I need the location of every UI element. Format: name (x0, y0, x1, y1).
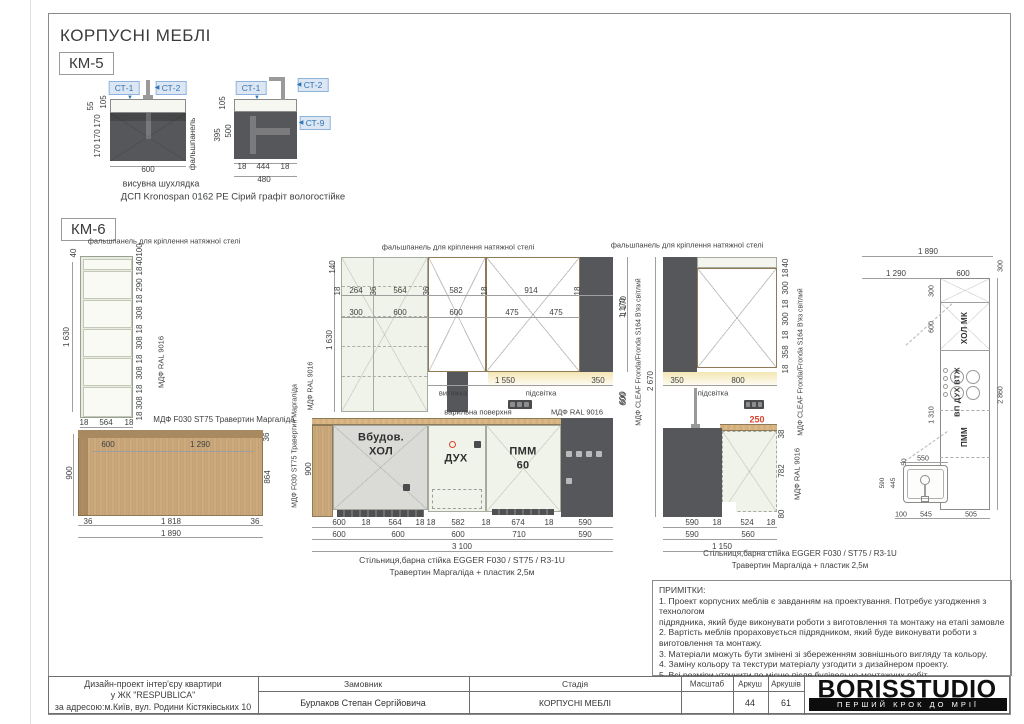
km5-side-drawer-profile-v (250, 116, 256, 154)
note-line: 4. Заміну кольору та текстури матеріалу … (659, 659, 1005, 670)
dim-label: 308 (136, 336, 144, 349)
ref-tag: СТ-9 (300, 116, 331, 130)
km5-front-faucet-base (143, 95, 153, 99)
dim-label: 590 (685, 519, 698, 527)
dim-label: 18 (281, 163, 290, 171)
dim-label: 505 (965, 512, 977, 519)
dim-label: 3 100 (452, 543, 472, 551)
dim-label: 40 (70, 249, 78, 258)
km6-shelf-unit (80, 256, 133, 418)
dim-label: 140 (329, 260, 337, 273)
leader-arrow-icon: ◀ (299, 120, 304, 126)
tb-vline (804, 677, 805, 715)
socket-dot (517, 402, 522, 407)
dim-label: 18 (782, 365, 790, 374)
dim-label: 475 (505, 309, 518, 317)
dim-label: 864 (264, 470, 272, 483)
dim-label: 18 (545, 519, 554, 527)
ref-tag: СТ-1 (109, 81, 140, 95)
km6-c-upper-door-right (486, 257, 580, 372)
dim-label: 300 (349, 309, 362, 317)
text-label: фальшпанель для кріплення натяжної стелі (611, 241, 764, 249)
km6-c-fridge-vent (337, 510, 424, 517)
socket-dot (510, 402, 515, 407)
dim-label: 36 (263, 433, 271, 442)
project-line-1: Дизайн-проект інтер'єру квартири (84, 679, 221, 689)
dim-label: 2 860 (998, 386, 1005, 404)
burner-circle (966, 386, 980, 400)
text-label: фальшпанель для кріплення натяжної стелі (88, 237, 241, 245)
dim-label: 308 (136, 366, 144, 379)
shelf-dash (342, 376, 427, 377)
shelf-dash (342, 346, 427, 347)
km6-c-dark-base (561, 418, 613, 517)
sheet-label: Аркуш (738, 680, 762, 689)
stage-value: КОРПУСНІ МЕБЛІ (539, 698, 611, 708)
socket-dot (524, 402, 529, 407)
dim-label: 358 (782, 345, 790, 358)
dim-label: 300 (782, 281, 790, 294)
km6-wood-panel-top-strip (78, 430, 263, 438)
project-line-3: за адресою:м.Київ, вул. Родини Кістяківс… (55, 702, 251, 712)
sheets-total: 61 (781, 698, 791, 708)
dim-line (341, 317, 580, 318)
text-label: Травертин Маргаліда + пластик 2,5м (390, 568, 535, 577)
dim-line (92, 451, 254, 452)
dim-label: 18 (136, 385, 144, 394)
dim-label: 1 290 (886, 270, 906, 278)
dim-label: 40 (782, 259, 790, 268)
text-label: МДФ F030 ST75 Травертин Маргаліда (153, 416, 294, 424)
dim-line (428, 385, 613, 386)
dim-label: 914 (524, 287, 537, 295)
dim-label: 2 670 (647, 371, 655, 391)
dim-label: 100 (136, 243, 144, 256)
dim-label: 170 (94, 114, 102, 127)
dim-label: 782 (778, 464, 786, 477)
dim-label: 550 (917, 456, 929, 463)
dim-label: 105 (219, 96, 227, 109)
dim-label: 105 (100, 95, 108, 108)
dim-line (663, 527, 777, 528)
km5-label: КМ-5 (59, 52, 114, 75)
dim-label: 308 (136, 396, 144, 409)
km6-r-wall-cabinet (697, 268, 777, 368)
tb-vline (681, 677, 682, 715)
dim-label: 545 (920, 512, 932, 519)
dim-label: 170 (94, 144, 102, 157)
text-label: МДФ F030 ST75 Травертин Маргаліда (292, 384, 299, 508)
text-label: МДФ RAL 9016 (551, 408, 603, 416)
note-line: 1. Проект корпусних меблів є завданням н… (659, 596, 1005, 607)
dim-line (663, 385, 777, 386)
dim-label: 600 (393, 309, 406, 317)
note-line: технологом (659, 606, 1005, 617)
text-label: МДФ RAL 9016 (793, 448, 801, 500)
dim-line (80, 427, 133, 428)
dim-label: 250 (749, 416, 764, 425)
km6-c-dw-vent (492, 509, 554, 515)
dim-label: 590 (578, 519, 591, 527)
note-line: 3. Матеріали можуть бути змінені зі збер… (659, 649, 1005, 660)
leader-arrow-icon: ▼ (127, 95, 133, 101)
text-label: МДФ RAL 9016 (157, 336, 165, 388)
handle-dot (576, 451, 582, 457)
km6-r-faucet (694, 388, 697, 428)
km6-c-tall-divider (373, 257, 374, 412)
knob-circle (943, 368, 948, 373)
handle-dot (566, 478, 572, 484)
plan-wall-line (862, 278, 940, 279)
client-label: Замовник (344, 679, 382, 689)
dim-label: 18 (782, 300, 790, 309)
km6-r-toe-notch (722, 502, 736, 512)
title-block: Дизайн-проект інтер'єру квартири у ЖК "R… (48, 676, 1010, 714)
socket-triple (744, 400, 764, 409)
socket-dot (758, 402, 762, 407)
dim-label: 600 (141, 166, 154, 174)
dim-label: 18 (767, 519, 776, 527)
ref-tag: СТ-2 (156, 81, 187, 95)
client-value: Бурлаков Степан Сергійовича (300, 698, 426, 708)
dim-label: 674 (511, 519, 524, 527)
text-label: ПММ (961, 427, 969, 447)
sheet-number: 44 (745, 698, 755, 708)
km6-wood-panel-left-stile (78, 438, 88, 516)
dim-label: 600 (332, 531, 345, 539)
dim-label: 445 (891, 478, 898, 489)
dim-label: 600 (956, 270, 969, 278)
dim-label: 264 (349, 287, 362, 295)
dim-label: 18 (238, 163, 247, 171)
knob-circle (943, 384, 948, 389)
handle-dot (586, 451, 592, 457)
ref-tag: СТ-2 (298, 78, 329, 92)
dim-label: 1 550 (495, 377, 515, 385)
dim-label: 564 (99, 419, 112, 427)
dim-label: 475 (549, 309, 562, 317)
dim-label: 600 (332, 519, 345, 527)
dim-label: 18 (136, 295, 144, 304)
text-label: варильна поверхня (444, 408, 511, 416)
dim-label: 300 (782, 312, 790, 325)
tb-vline (469, 677, 470, 715)
dim-label: 600 (101, 441, 114, 449)
tb-vline (768, 677, 769, 715)
text-label: МДФ RAL 9016 (308, 362, 315, 411)
dim-label: 40 (136, 257, 144, 266)
dim-label: 1 890 (161, 530, 181, 538)
km6-c-oven-drawer (432, 489, 482, 509)
dim-label: 500 (225, 124, 233, 137)
shelf-opening (83, 387, 132, 417)
dim-label: 18 (427, 519, 436, 527)
shelf-opening (83, 358, 132, 386)
text-label: підсвітка (526, 389, 557, 397)
km6-r-light-base (722, 431, 777, 512)
dim-label: 38 (778, 430, 786, 439)
dim-label: 350 (670, 377, 683, 385)
dim-label: 600 (449, 309, 462, 317)
knob-circle (943, 392, 948, 397)
socket-single (403, 484, 410, 491)
notes-title: ПРИМІТКИ: (659, 585, 1005, 596)
km5-side-body (234, 112, 297, 159)
text-label: витяжка (439, 389, 467, 397)
scale-label: Масштаб (690, 680, 724, 689)
dim-label: 18 (334, 287, 342, 296)
dim-label: 18 (574, 287, 582, 296)
dim-label: 600 (620, 392, 628, 405)
km5-side-faucet-arm (269, 77, 285, 81)
sink-drain-circle (920, 475, 930, 485)
dim-label: 564 (388, 519, 401, 527)
drawing-sheet: КОРПУСНІ МЕБЛІ КМ-5 КМ-6 СТ-1СТ-2СТ-1СТ-… (0, 0, 1024, 724)
burner-circle (966, 370, 980, 384)
dim-label: 80 (778, 510, 786, 519)
dim-label: 18 (362, 519, 371, 527)
km6-c-dark-column (580, 257, 613, 372)
dim-line (663, 539, 777, 540)
text-label: ВП ДУХ ВТЖ (953, 367, 961, 417)
text-label: Травертин Маргаліда + пластик 2,5м (732, 562, 868, 570)
dim-label: 18 (136, 412, 144, 421)
dim-label: 36 (423, 287, 431, 296)
dim-line (312, 539, 613, 540)
dim-label: 36 (370, 287, 378, 296)
km6-c-tall-cabinet (341, 257, 428, 412)
km5-side-countertop (234, 99, 297, 112)
shelf-opening (83, 329, 132, 357)
plan-dash-line (940, 457, 990, 458)
dim-label: 1 818 (161, 518, 181, 526)
dim-label: 800 (731, 377, 744, 385)
km5-front-countertop (110, 99, 186, 113)
dim-label: 36 (84, 518, 93, 526)
km6-r-top-band (697, 257, 777, 268)
text-label: ХОЛ МК (961, 312, 969, 344)
dim-label: 900 (66, 466, 74, 479)
ref-tag: СТ-1 (236, 81, 267, 95)
text-label: фальшпанель (189, 118, 197, 171)
dim-line (312, 551, 613, 552)
notes-box: ПРИМІТКИ: 1. Проект корпусних меблів є з… (652, 580, 1012, 676)
text-label: Стільниця,барна стійка EGGER F030 / ST75… (703, 550, 897, 558)
gas-point-marker (449, 441, 456, 448)
dim-label: 1 310 (929, 406, 936, 424)
dim-label: 60 (517, 461, 530, 472)
dim-label: 18 (782, 269, 790, 278)
dim-label: 1 890 (918, 248, 938, 256)
dim-label: 600 (451, 531, 464, 539)
dim-label: 480 (257, 176, 270, 184)
text-label: ДСП Kronospan 0162 PE Сірий графіт волог… (121, 192, 345, 202)
page-title: КОРПУСНІ МЕБЛІ (60, 26, 211, 46)
note-line: 2. Вартість меблів прораховується підряд… (659, 627, 1005, 638)
dim-line (862, 256, 993, 257)
dim-label: 710 (512, 531, 525, 539)
dim-label: 308 (136, 306, 144, 319)
studio-logo-bar: ПЕРШИЙ КРОК ДО МРІЇ (809, 698, 1007, 711)
dim-label: 900 (305, 462, 313, 475)
text-label: фальшпанель для кріплення натяжної стелі (382, 243, 535, 251)
km6-r-dark-base (663, 428, 722, 517)
text-label: висувна шухлядка (123, 180, 200, 189)
dim-line (334, 262, 335, 412)
text-label: підсвітка (698, 389, 729, 397)
dim-label: 100 (895, 512, 907, 519)
km6-r-dark-column (663, 257, 697, 372)
km6-r-countertop (720, 424, 777, 431)
note-line: виготовлення та монтажу. (659, 638, 1005, 649)
shelf-top-band (83, 259, 132, 270)
dim-label: 18 (482, 519, 491, 527)
text-label: ПММ (509, 447, 536, 458)
dim-label: 590 (685, 531, 698, 539)
leader-arrow-icon: ◀ (297, 82, 302, 88)
dim-label: 18 (80, 419, 89, 427)
dim-label: 600 (929, 321, 936, 333)
dim-label: 350 (591, 377, 604, 385)
text-label: ХОЛ (369, 447, 393, 458)
sheets-label: Аркушів (771, 680, 801, 689)
dim-label: 18 (136, 355, 144, 364)
notes-lines: 1. Проект корпусних меблів є завданням н… (659, 596, 1005, 681)
text-label: Вбудов. (358, 433, 404, 444)
socket-single (474, 441, 481, 448)
plan-dash-line (940, 410, 990, 411)
project-line-2: у ЖК "RESPUBLICA" (111, 690, 196, 700)
shelf-opening (83, 300, 132, 328)
sheet-left-edge (30, 0, 31, 724)
dim-label: 582 (451, 519, 464, 527)
leader-arrow-icon: ◀ (155, 85, 160, 91)
dim-line (655, 257, 656, 517)
dim-label: 18 (136, 325, 144, 334)
note-line: підрядника, який буде виконувати роботи … (659, 617, 1005, 628)
studio-tagline: ПЕРШИЙ КРОК ДО МРІЇ (837, 700, 979, 709)
text-label: МДФ CLEAF Fronda/Fronda S164 В'яз світли… (798, 288, 805, 435)
dim-label: 55 (87, 102, 95, 111)
plan-top-section (941, 279, 989, 302)
dim-label: 582 (449, 287, 462, 295)
knob-circle (943, 376, 948, 381)
tb-hline (258, 691, 804, 692)
text-label: Стільниця,барна стійка EGGER F030 / ST75… (359, 556, 565, 565)
dim-label: 18 (713, 519, 722, 527)
shelf-opening (83, 271, 132, 299)
text-label: МДФ CLEAF Fronda/Fronda S164 В'яз світли… (636, 278, 643, 425)
dim-label: 560 (741, 531, 754, 539)
dim-label: 600 (391, 531, 404, 539)
dim-label: 18 (481, 287, 489, 296)
dim-label: 18 (125, 419, 134, 427)
dim-label: 300 (929, 285, 936, 297)
text-label: ДУХ (444, 454, 467, 465)
dim-label: 590 (578, 531, 591, 539)
handle-dot (566, 451, 572, 457)
dim-line (72, 262, 73, 412)
dim-label: 300 (998, 260, 1005, 272)
dim-label: 524 (740, 519, 753, 527)
plan-section-line (940, 350, 990, 351)
dim-label: 444 (256, 163, 269, 171)
dim-label: 1 630 (326, 330, 334, 350)
km6-c-end-panel (312, 425, 333, 517)
dim-label: 564 (393, 287, 406, 295)
dim-label: 1 290 (190, 441, 210, 449)
socket-dot (752, 402, 756, 407)
dim-label: 170 (94, 129, 102, 142)
dim-label: 36 (251, 518, 260, 526)
dim-label: 18 (136, 267, 144, 276)
km5-front-handle (146, 113, 151, 139)
dim-line (312, 527, 613, 528)
tb-vline (258, 677, 259, 715)
leader-arrow-icon: ▼ (254, 95, 260, 101)
sink-tap-square (921, 496, 929, 502)
dim-label: 18 (416, 519, 425, 527)
dim-label: 50 (902, 458, 909, 465)
dim-label: 395 (214, 128, 222, 141)
tb-vline (733, 677, 734, 715)
dim-label: 290 (136, 278, 144, 291)
stage-label: Стадія (562, 679, 588, 689)
socket-dot (746, 402, 750, 407)
handle-dot (596, 451, 602, 457)
dim-label: 1 170 (620, 296, 628, 316)
dim-label: 590 (880, 478, 887, 489)
dim-label: 18 (782, 331, 790, 340)
km5-side-drawer-profile-h (256, 128, 290, 135)
dim-label: 1 630 (63, 327, 71, 347)
